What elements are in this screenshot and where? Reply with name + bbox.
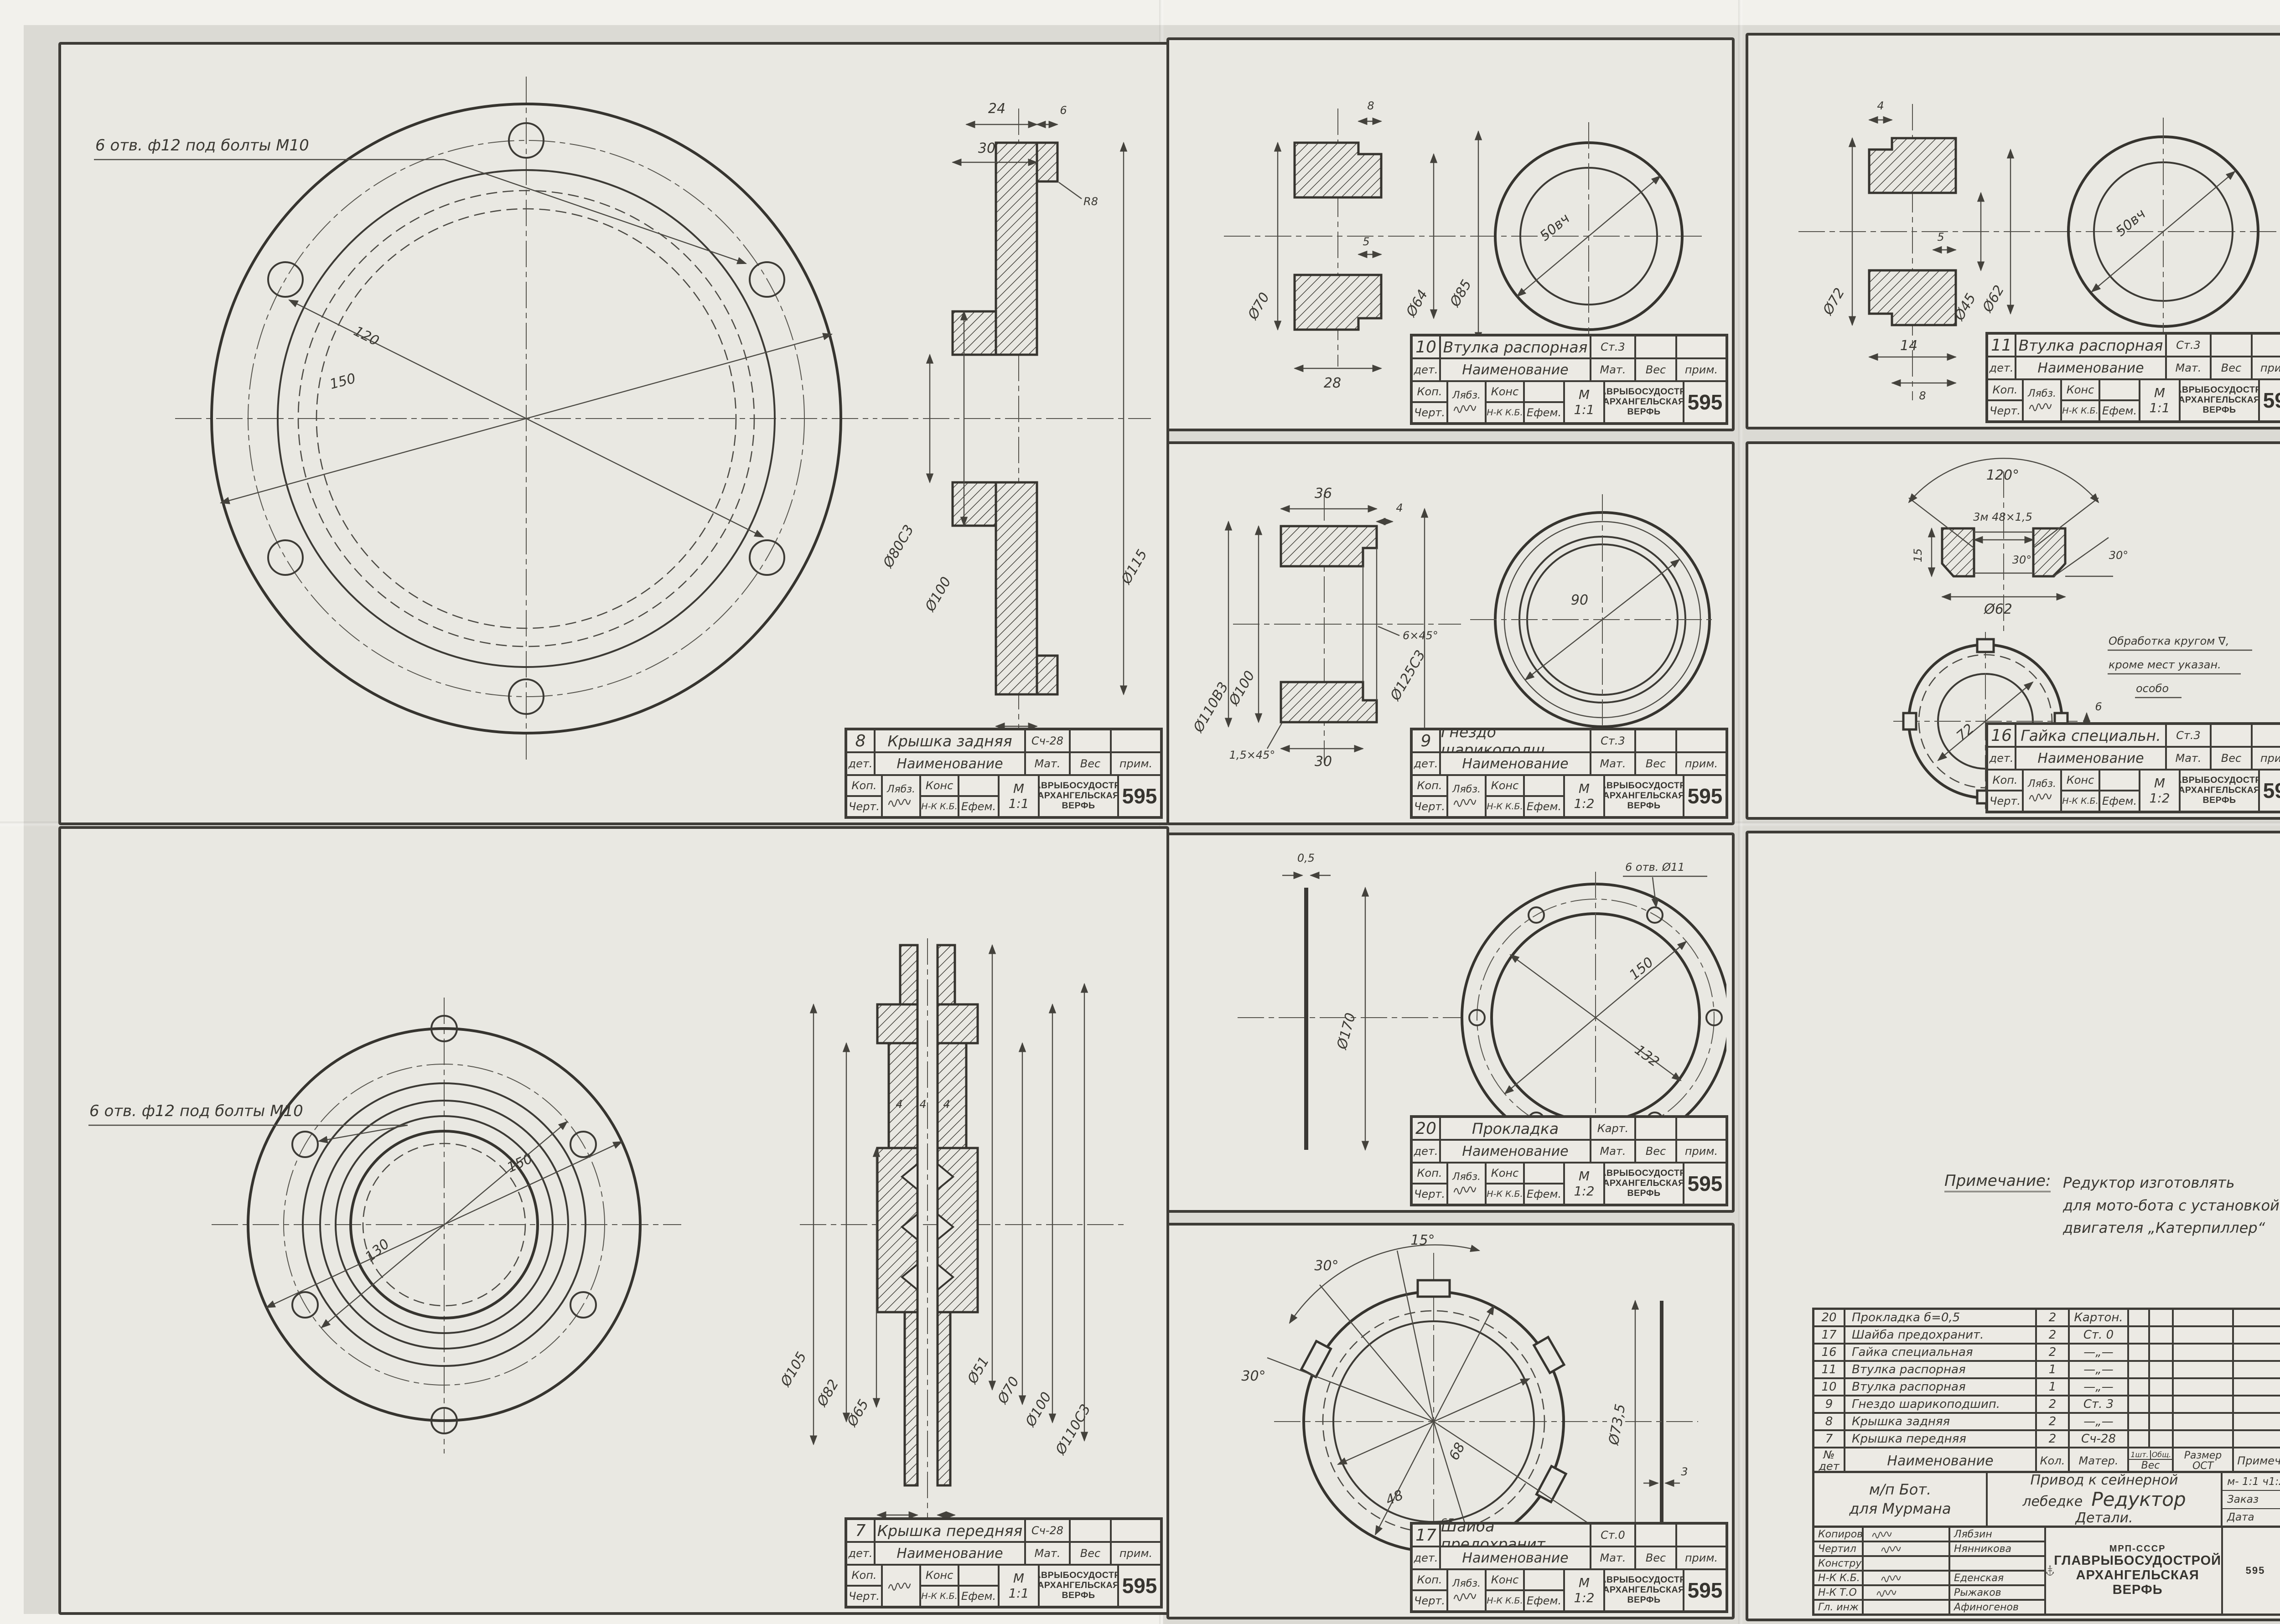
- label-name: Наименование: [1440, 1546, 1591, 1569]
- signature-scribble: [885, 795, 917, 809]
- parts-row: 16Гайка специальная2—„—: [1814, 1344, 2280, 1361]
- dim-label: 120: [351, 323, 382, 349]
- dim-label: 30°: [2012, 553, 2032, 566]
- label-mat: Мат.: [1591, 358, 1635, 381]
- label-name: Наименование: [875, 752, 1025, 775]
- sheet-note-text: Редуктор изготовлять для мото-бота с уст…: [2063, 1172, 2280, 1240]
- dim-label: 30°: [2109, 549, 2129, 562]
- blank-cell: [1863, 1600, 1949, 1614]
- label-ves: Вес: [1070, 1542, 1111, 1565]
- scan-edge-top: [0, 0, 2280, 25]
- front-view: 120 150: [175, 77, 877, 760]
- dim-label: 15: [1912, 548, 1924, 563]
- part-material: Ст.3: [2166, 724, 2211, 747]
- label-ves: Вес: [1070, 752, 1111, 775]
- signature-cell: Лябз.: [2023, 379, 2061, 421]
- dim-label: 15°: [1410, 1232, 1435, 1248]
- drawing-number-large: 595: [2222, 1527, 2280, 1614]
- drawing-number: 595: [2259, 379, 2280, 421]
- part-material: Ст.3: [2166, 334, 2211, 357]
- blank-cell: [1524, 1163, 1564, 1184]
- organization: ГЛАВРЫБОСУДОСТРОЙАРХАНГЕЛЬСКАЯВЕРФЬ: [1039, 775, 1118, 817]
- dim-label: 5: [1937, 231, 1944, 243]
- parts-header: №дет Наименование Кол. Матер. 1шт.Общ. В…: [1814, 1448, 2280, 1474]
- drawing-cover-front: 130 150 6 отв. ф12 под болты М10: [61, 829, 1161, 1607]
- dim-label: Ø72: [1819, 285, 1848, 319]
- order-row: Заказ: [2223, 1491, 2280, 1509]
- scale-cell: М1:2: [1564, 775, 1604, 817]
- scale-cell: М 1:1: [999, 775, 1039, 817]
- organization: ГЛАВРЫБОСУДОСТРОЙАРХАНГЕЛЬСКАЯВЕРФЬ: [2180, 770, 2259, 812]
- side-view: Ø73,5 3: [1606, 1301, 1698, 1552]
- scale-cell: М1:2: [1564, 1569, 1604, 1611]
- dim-label: 30: [978, 140, 995, 156]
- dim-label: Ø62: [1979, 283, 2007, 316]
- part-name: Гнездо шарикоподш.: [1440, 729, 1591, 752]
- part-number: 11: [1987, 334, 2016, 357]
- label-nkkb: Н-К К.Б.: [1486, 1184, 1524, 1205]
- organization: ГЛАВРЫБОСУДОСТРОЙАРХАНГЕЛЬСКАЯВЕРФЬ: [1604, 1569, 1684, 1611]
- organization-stamp: АСВ МРП-СССР ГЛАВРЫБОСУДОСТРОЙ АРХАНГЕЛЬ…: [2045, 1527, 2222, 1614]
- note-cell: [1676, 1524, 1726, 1546]
- title-block: 17 Шайба предохранит. Ст.0 дет. Наименов…: [1410, 1522, 1728, 1613]
- dim-label: Ø105: [777, 1349, 810, 1390]
- label-chert: Черт.: [846, 796, 882, 817]
- dim-label: 8: [1919, 389, 1926, 402]
- dim-label: 6×45°: [1403, 629, 1438, 642]
- label-nkkb: Н-К К.Б.: [920, 1586, 959, 1607]
- parts-list: 20Прокладка б=0,52Картон. 17Шайба предох…: [1812, 1308, 2280, 1475]
- blank-cell: [959, 1565, 999, 1586]
- dim-label: 90: [1571, 592, 1588, 608]
- panel-cover-front: 130 150 6 отв. ф12 под болты М10: [58, 826, 1169, 1615]
- label-prim: прим.: [2252, 747, 2280, 770]
- machining-note: Обработка кругом ∇, кроме мест указан. о…: [2108, 635, 2252, 698]
- label-ves: Вес: [2211, 357, 2252, 379]
- label-ves: Вес: [1635, 1546, 1676, 1569]
- label-chert: Черт.: [1412, 402, 1447, 423]
- dim-label: Ø80С3: [880, 522, 917, 571]
- assembly-title: Привод к сейнерной лебедке Редуктор Дета…: [1987, 1472, 2222, 1527]
- label-scale: М: [1013, 781, 1024, 796]
- part-name: Втулка распорная: [1440, 336, 1591, 358]
- date-row: Дата: [2223, 1509, 2280, 1526]
- signature-text: Ефем.: [1524, 1590, 1564, 1611]
- panel-gasket: 0,5 Ø170 150 132 6 отв. Ø11: [1166, 833, 1735, 1213]
- weight-cell: [1635, 1117, 1676, 1140]
- label-nkkb: Н-К К.Б.: [2061, 400, 2099, 421]
- parts-row: 20Прокладка б=0,52Картон.: [1814, 1309, 2280, 1326]
- panel-bearing-seat: 36 4 Ø100 Ø110В3 Ø125С3 6×45° 1,5×45° 30: [1166, 441, 1735, 825]
- signature-scribble: [1451, 1183, 1482, 1196]
- label-mat: Мат.: [2166, 357, 2211, 379]
- label-chert: Черт.: [1987, 791, 2023, 812]
- label-kop: Коп.: [1412, 775, 1447, 796]
- dim-label: 4: [1877, 99, 1884, 112]
- label-name: Наименование: [1440, 1140, 1591, 1163]
- signature-scribble: [1451, 795, 1482, 809]
- hole-note: 6 отв. Ø11: [1625, 861, 1684, 874]
- label-ves: Вес: [1635, 752, 1676, 775]
- label-kop: Коп.: [846, 775, 882, 796]
- label-nkkb: Н-К К.Б.: [1486, 1590, 1524, 1611]
- part-number: 8: [846, 729, 875, 752]
- dim-label: Ø125С3: [1387, 647, 1429, 704]
- sheet-note: Примечание:: [1944, 1172, 2051, 1190]
- scale-order-date: м- 1:1 ч1:2 Заказ Дата: [2222, 1472, 2280, 1527]
- weight-cell: [2211, 334, 2252, 357]
- label-prim: прим.: [2252, 357, 2280, 379]
- blank-cell: [1863, 1556, 1949, 1571]
- label-kop: Коп.: [846, 1565, 882, 1586]
- signature-text: Лябз.: [1452, 1171, 1481, 1183]
- note-label: Примечание:: [1944, 1172, 2051, 1192]
- label-nkkb: Н-К К.Б.: [920, 796, 959, 817]
- blank-cell: [2099, 379, 2140, 400]
- signature-text: Лябз.: [2028, 388, 2056, 399]
- parts-row: 8Крышка задняя2—„—: [1814, 1413, 2280, 1430]
- panel-lock-washer: 15° 30° 30° 30° 30° 68 48 65 55 Ø73,5: [1166, 1223, 1735, 1619]
- label-kop: Коп.: [1412, 1569, 1447, 1590]
- dim-label: 50вч: [1537, 211, 1573, 244]
- dim-label: Ø70: [1244, 290, 1273, 323]
- dim-label: 28: [1324, 375, 1341, 391]
- scan-edge-left: [0, 0, 24, 1624]
- signature-text: Ефем.: [1524, 796, 1564, 817]
- signature-scribble: [1451, 1589, 1482, 1603]
- dim-label: 72: [1954, 721, 1977, 744]
- drawing-number: 595: [1684, 775, 1726, 817]
- part-number: 7: [846, 1519, 875, 1542]
- label-kons: Конс: [1486, 381, 1524, 402]
- dim-label: 0,5: [1297, 852, 1315, 864]
- signature-text: Ефем.: [959, 1586, 999, 1607]
- dim-label: Ø64: [1403, 287, 1431, 321]
- blank-cell: [1524, 381, 1564, 402]
- signature-cell: Лябз.: [1447, 775, 1486, 817]
- parts-row: 11Втулка распорная1—„—: [1814, 1361, 2280, 1378]
- label-mat: Мат.: [2166, 747, 2211, 770]
- dim-label: 14: [1900, 338, 1917, 354]
- vessel-name: м/п Бот. для Мурмана: [1814, 1472, 1987, 1527]
- part-number: 16: [1987, 724, 2016, 747]
- part-number: 20: [1412, 1117, 1440, 1140]
- part-material: Ст.0: [1591, 1524, 1635, 1546]
- panel-cover-rear: 120 150 6 отв. ф12 под болты М10 24: [58, 42, 1169, 825]
- title-block: 7 Крышка передняя Сч-28 дет. Наименовани…: [845, 1517, 1163, 1608]
- note-cell: [2252, 334, 2280, 357]
- dim-label: 132: [1632, 1042, 1662, 1070]
- organization: ГЛАВРЫБОСУДОСТРОЙАРХАНГЕЛЬСКАЯВЕРФЬ: [1604, 775, 1684, 817]
- dim-label: 150: [328, 371, 357, 393]
- label-prim: прим.: [1676, 752, 1726, 775]
- signature-scribble: [1863, 1571, 1949, 1585]
- dim-label: Ø82: [814, 1377, 842, 1410]
- signature-text: Лябз.: [887, 784, 915, 795]
- drawing-number: 595: [1684, 381, 1726, 423]
- organization: ГЛАВРЫБОСУДОСТРОЙАРХАНГЕЛЬСКАЯВЕРФЬ: [2180, 379, 2259, 421]
- signature-scribble: [1863, 1541, 1949, 1556]
- part-material: Карт.: [1591, 1117, 1635, 1140]
- weight-cell: [2211, 724, 2252, 747]
- parts-row: 10Втулка распорная1—„—: [1814, 1378, 2280, 1396]
- dim-label: Ø100: [1022, 1389, 1055, 1430]
- note-line: особо: [2136, 682, 2169, 695]
- signature-text: Ефем.: [1524, 1184, 1564, 1205]
- part-material: Сч-28: [1025, 1519, 1070, 1542]
- signature-text: Лябз.: [1452, 1578, 1481, 1589]
- parts-row: 9Гнездо шарикоподшип.2Ст. 3: [1814, 1396, 2280, 1413]
- part-name: Гайка специальн.: [2016, 724, 2166, 747]
- blank-cell: [1524, 775, 1564, 796]
- scale-cell: М1:1: [999, 1565, 1039, 1607]
- scan-edge-bottom: [0, 1614, 1163, 1624]
- dim-label: Ø110С3: [1052, 1402, 1094, 1458]
- note-cell: [1676, 336, 1726, 358]
- dim-label: 4: [1396, 502, 1403, 514]
- label-kons: Конс: [920, 1565, 959, 1586]
- part-material: Ст.3: [1591, 336, 1635, 358]
- title-block: 10 Втулка распорная Ст.3 дет. Наименован…: [1410, 334, 1728, 425]
- drawing-number: 595: [2259, 770, 2280, 812]
- label-ves: Вес: [1635, 358, 1676, 381]
- part-name: Крышка передняя: [875, 1519, 1025, 1542]
- end-view: 90: [1470, 494, 1714, 745]
- label-nkkb: Н-К К.Б.: [2061, 791, 2099, 812]
- weight-cell: [1070, 729, 1111, 752]
- logo-letters: АСВ: [2048, 1569, 2052, 1572]
- signature-text: Лябз.: [2028, 778, 2056, 790]
- label-prim: прим.: [1676, 1140, 1726, 1163]
- label-mat: Мат.: [1591, 752, 1635, 775]
- dim-label: Ø115: [1118, 547, 1150, 587]
- dim-label: 150: [1627, 954, 1657, 983]
- shipyard-logo-anchor-icon: АСВ: [2046, 1534, 2054, 1607]
- label-kons: Конс: [1486, 775, 1524, 796]
- part-number: 17: [1412, 1524, 1440, 1546]
- drawing-number: 595: [1118, 1565, 1161, 1607]
- dim-label: 50вч: [2113, 206, 2149, 240]
- hole-note: 6 отв. ф12 под болты М10: [95, 136, 309, 155]
- dim-label: 6: [1060, 104, 1067, 117]
- dim-label: 30°: [1314, 1258, 1338, 1274]
- part-number: 10: [1412, 336, 1440, 358]
- signature-cell: Лябз.: [1447, 1163, 1486, 1205]
- dim-label: 4: [896, 1098, 902, 1111]
- label-kons: Конс: [1486, 1569, 1524, 1590]
- signature-cell: Лябз.: [2023, 770, 2061, 812]
- signature-scribble: [1451, 401, 1482, 415]
- dim-label: 8: [1367, 99, 1374, 112]
- parts-row: 17Шайба предохранит.2Ст. 0: [1814, 1326, 2280, 1344]
- label-det: дет.: [1412, 1546, 1440, 1569]
- section-view: 4 4 4 Ø105 Ø82 Ø65 Ø51 Ø70 Ø100 Ø110С3 8: [777, 938, 1124, 1577]
- label-det: дет.: [1987, 357, 2016, 379]
- dim-label: 48: [1384, 1487, 1406, 1509]
- label-det: дет.: [1412, 358, 1440, 381]
- blank-cell: [959, 775, 999, 796]
- signature-scribble: [2026, 399, 2058, 413]
- section-view: 24 30 6 R8 Ø80С3 Ø100 Ø115 8: [880, 101, 1151, 751]
- dim-label: 5: [1363, 235, 1369, 248]
- label-name: Наименование: [875, 1542, 1025, 1565]
- organization-name: МРП-СССР ГЛАВРЫБОСУДОСТРОЙ АРХАНГЕЛЬСКАЯ…: [2054, 1544, 2221, 1598]
- label-nkkb: Н-К К.Б.: [1486, 402, 1524, 423]
- panel-bushing-11: 4 5 Ø72 Ø62 Ø45 14 8 50вч 11 Вт: [1746, 33, 2280, 429]
- signature-text: Лябз.: [1452, 784, 1481, 795]
- dim-label: Ø73,5: [1606, 1403, 1629, 1447]
- label-det: дет.: [1412, 752, 1440, 775]
- dim-label: Ø62: [1983, 601, 2012, 617]
- part-material: Ст.3: [1591, 729, 1635, 752]
- scale-value: 1:1: [1008, 796, 1029, 811]
- dim-label: 6: [2095, 700, 2102, 713]
- dim-label: 1,5×45°: [1229, 749, 1275, 761]
- label-kons: Конс: [1486, 1163, 1524, 1184]
- label-mat: Мат.: [1025, 1542, 1070, 1565]
- signature-text: Ефем.: [1524, 402, 1564, 423]
- dim-label: Ø85: [1446, 277, 1475, 310]
- hole-callout: 6 отв. Ø11: [1623, 861, 1707, 907]
- label-name: Наименование: [2016, 357, 2166, 379]
- label-mat: Мат.: [1025, 752, 1070, 775]
- dim-label: Ø51: [964, 1354, 992, 1387]
- signature-text: Ефем.: [959, 796, 999, 817]
- drawing-number: 595: [1684, 1163, 1726, 1205]
- approval-block: Копиров. Чертил Конструк. Н-К К.Б. Н-К Т…: [1812, 1526, 2280, 1616]
- title-block: 20 Прокладка Карт. дет. Наименование Мат…: [1410, 1115, 1728, 1206]
- label-det: дет.: [1987, 747, 2016, 770]
- note-line: кроме мест указан.: [2109, 658, 2221, 671]
- label-prim: прим.: [1111, 1542, 1161, 1565]
- note-cell: [1676, 729, 1726, 752]
- organization: ГЛАВРЫБОСУДОСТРОЙАРХАНГЕЛЬСКАЯВЕРФЬ: [1604, 1163, 1684, 1205]
- note-cell: [2252, 724, 2280, 747]
- scale-cell: М1:1: [2140, 379, 2180, 421]
- hole-note: 6 отв. ф12 под болты М10: [89, 1102, 303, 1120]
- label-name: Наименование: [1440, 752, 1591, 775]
- parts-row: 7Крышка передняя2Сч-28: [1814, 1430, 2280, 1448]
- label-kons: Конс: [920, 775, 959, 796]
- label-kop: Коп.: [1412, 1163, 1447, 1184]
- dim-label: Ø65: [844, 1397, 872, 1430]
- label-prim: прим.: [1676, 1546, 1726, 1569]
- blank-cell: [2099, 770, 2140, 791]
- hole-callout: 6 отв. ф12 под болты М10: [88, 1102, 408, 1141]
- dim-label: 30°: [1241, 1368, 1265, 1384]
- dim-label: R8: [1083, 195, 1098, 208]
- label-nkkb: Н-К К.Б.: [1486, 796, 1524, 817]
- label-name: Наименование: [2016, 747, 2166, 770]
- part-name: Прокладка: [1440, 1117, 1591, 1140]
- blank-cell: [1524, 1569, 1564, 1590]
- weight-header: 1шт.Общ. Вес: [2128, 1448, 2173, 1474]
- weight-cell: [1070, 1519, 1111, 1542]
- note-cell: [1111, 1519, 1161, 1542]
- label-mat: Мат.: [1591, 1546, 1635, 1569]
- section-view: 120° 3м 48×1,5 15 30° 30° Ø62: [1909, 458, 2128, 636]
- dim-label: 120°: [1986, 467, 2019, 483]
- label-chert: Черт.: [846, 1586, 882, 1607]
- panel-special-nut: 120° 3м 48×1,5 15 30° 30° Ø62: [1746, 441, 2280, 820]
- label-chert: Черт.: [1412, 796, 1447, 817]
- dim-label: 4: [919, 1098, 926, 1111]
- part-name: Крышка задняя: [875, 729, 1025, 752]
- dim-label: Ø70: [994, 1374, 1022, 1407]
- signature-scribble: [1863, 1585, 1949, 1600]
- dim-label: 36: [1315, 486, 1332, 502]
- dim-label: 68: [1446, 1440, 1468, 1463]
- note-cell: [1111, 729, 1161, 752]
- part-number: 9: [1412, 729, 1440, 752]
- label-prim: прим.: [1676, 358, 1726, 381]
- title-block: 16 Гайка специальн. Ст.3 дет. Наименован…: [1985, 722, 2280, 813]
- panel-bushing-10: 8 5 Ø70 Ø64 Ø85 28 50вч 10 Втулка распор…: [1166, 37, 1735, 431]
- label-name: Наименование: [1440, 358, 1591, 381]
- note-line: Обработка кругом ∇,: [2109, 635, 2229, 647]
- project-block: м/п Бот. для Мурмана Привод к сейнерной …: [1812, 1471, 2280, 1528]
- label-chert: Черт.: [1987, 400, 2023, 421]
- dim-label: 3: [1681, 1465, 1688, 1478]
- drawing-cover-rear: 120 150 6 отв. ф12 под болты М10 24: [61, 45, 1161, 817]
- panel-main-title: Примечание: Редуктор изготовлять для мот…: [1746, 831, 2280, 1621]
- signature-cell: [882, 1565, 920, 1607]
- note-cell: [1676, 1117, 1726, 1140]
- dim-label: 4: [943, 1098, 950, 1111]
- dim-label: Ø110В3: [1190, 679, 1232, 736]
- label-chert: Черт.: [1412, 1590, 1447, 1611]
- label-prim: прим.: [1111, 752, 1161, 775]
- dim-label: 24: [988, 101, 1005, 117]
- drawing-number: 595: [1684, 1569, 1726, 1611]
- title-block: 8 Крышка задняя Сч-28 дет. Наименование …: [845, 728, 1163, 819]
- dim-label: 30: [1315, 754, 1332, 770]
- front-view: 130 150: [212, 998, 681, 1453]
- label-kop: Коп.: [1412, 381, 1447, 402]
- signature-cell: Лябз.: [1447, 381, 1486, 423]
- signature-text: Ефем.: [2099, 791, 2140, 812]
- signature-scribble: [885, 1579, 917, 1593]
- blueprint-sheet: 120 150 6 отв. ф12 под болты М10 24: [0, 0, 2280, 1624]
- part-name: Шайба предохранит.: [1440, 1524, 1591, 1546]
- label-ves: Вес: [2211, 747, 2252, 770]
- label-kop: Коп.: [1987, 379, 2023, 400]
- hole-callout: 6 отв. ф12 под болты М10: [94, 136, 746, 264]
- label-ves: Вес: [1635, 1140, 1676, 1163]
- label-mat: Мат.: [1591, 1140, 1635, 1163]
- signature-text: Ефем.: [2099, 400, 2140, 421]
- fold-crease: [1738, 0, 1744, 1624]
- organization: ГЛАВРЫБОСУДОСТРОЙАРХАНГЕЛЬСКАЯВЕРФЬ: [1039, 1565, 1118, 1607]
- part-name: Втулка распорная: [2016, 334, 2166, 357]
- label-kons: Конс: [2061, 770, 2099, 791]
- scale-cell: М1:2: [1564, 1163, 1604, 1205]
- label-kop: Коп.: [1987, 770, 2023, 791]
- signature-cell: Лябз.: [882, 775, 920, 817]
- scale-cell: М1:2: [2140, 770, 2180, 812]
- title-block: 11 Втулка распорная Ст.3 дет. Наименован…: [1985, 332, 2280, 423]
- scale-cell: М1:1: [1564, 381, 1604, 423]
- organization: ГЛАВРЫБОСУДОСТРОЙАРХАНГЕЛЬСКАЯВЕРФЬ: [1604, 381, 1684, 423]
- label-kons: Конс: [2061, 379, 2099, 400]
- dim-label: Ø100: [922, 574, 954, 615]
- weight-cell: [1635, 336, 1676, 358]
- weight-cell: [1635, 1524, 1676, 1546]
- title-block: 9 Гнездо шарикоподш. Ст.3 дет. Наименова…: [1410, 728, 1728, 819]
- drawing-number: 595: [1118, 775, 1161, 817]
- weight-cell: [1635, 729, 1676, 752]
- label-det: дет.: [846, 1542, 875, 1565]
